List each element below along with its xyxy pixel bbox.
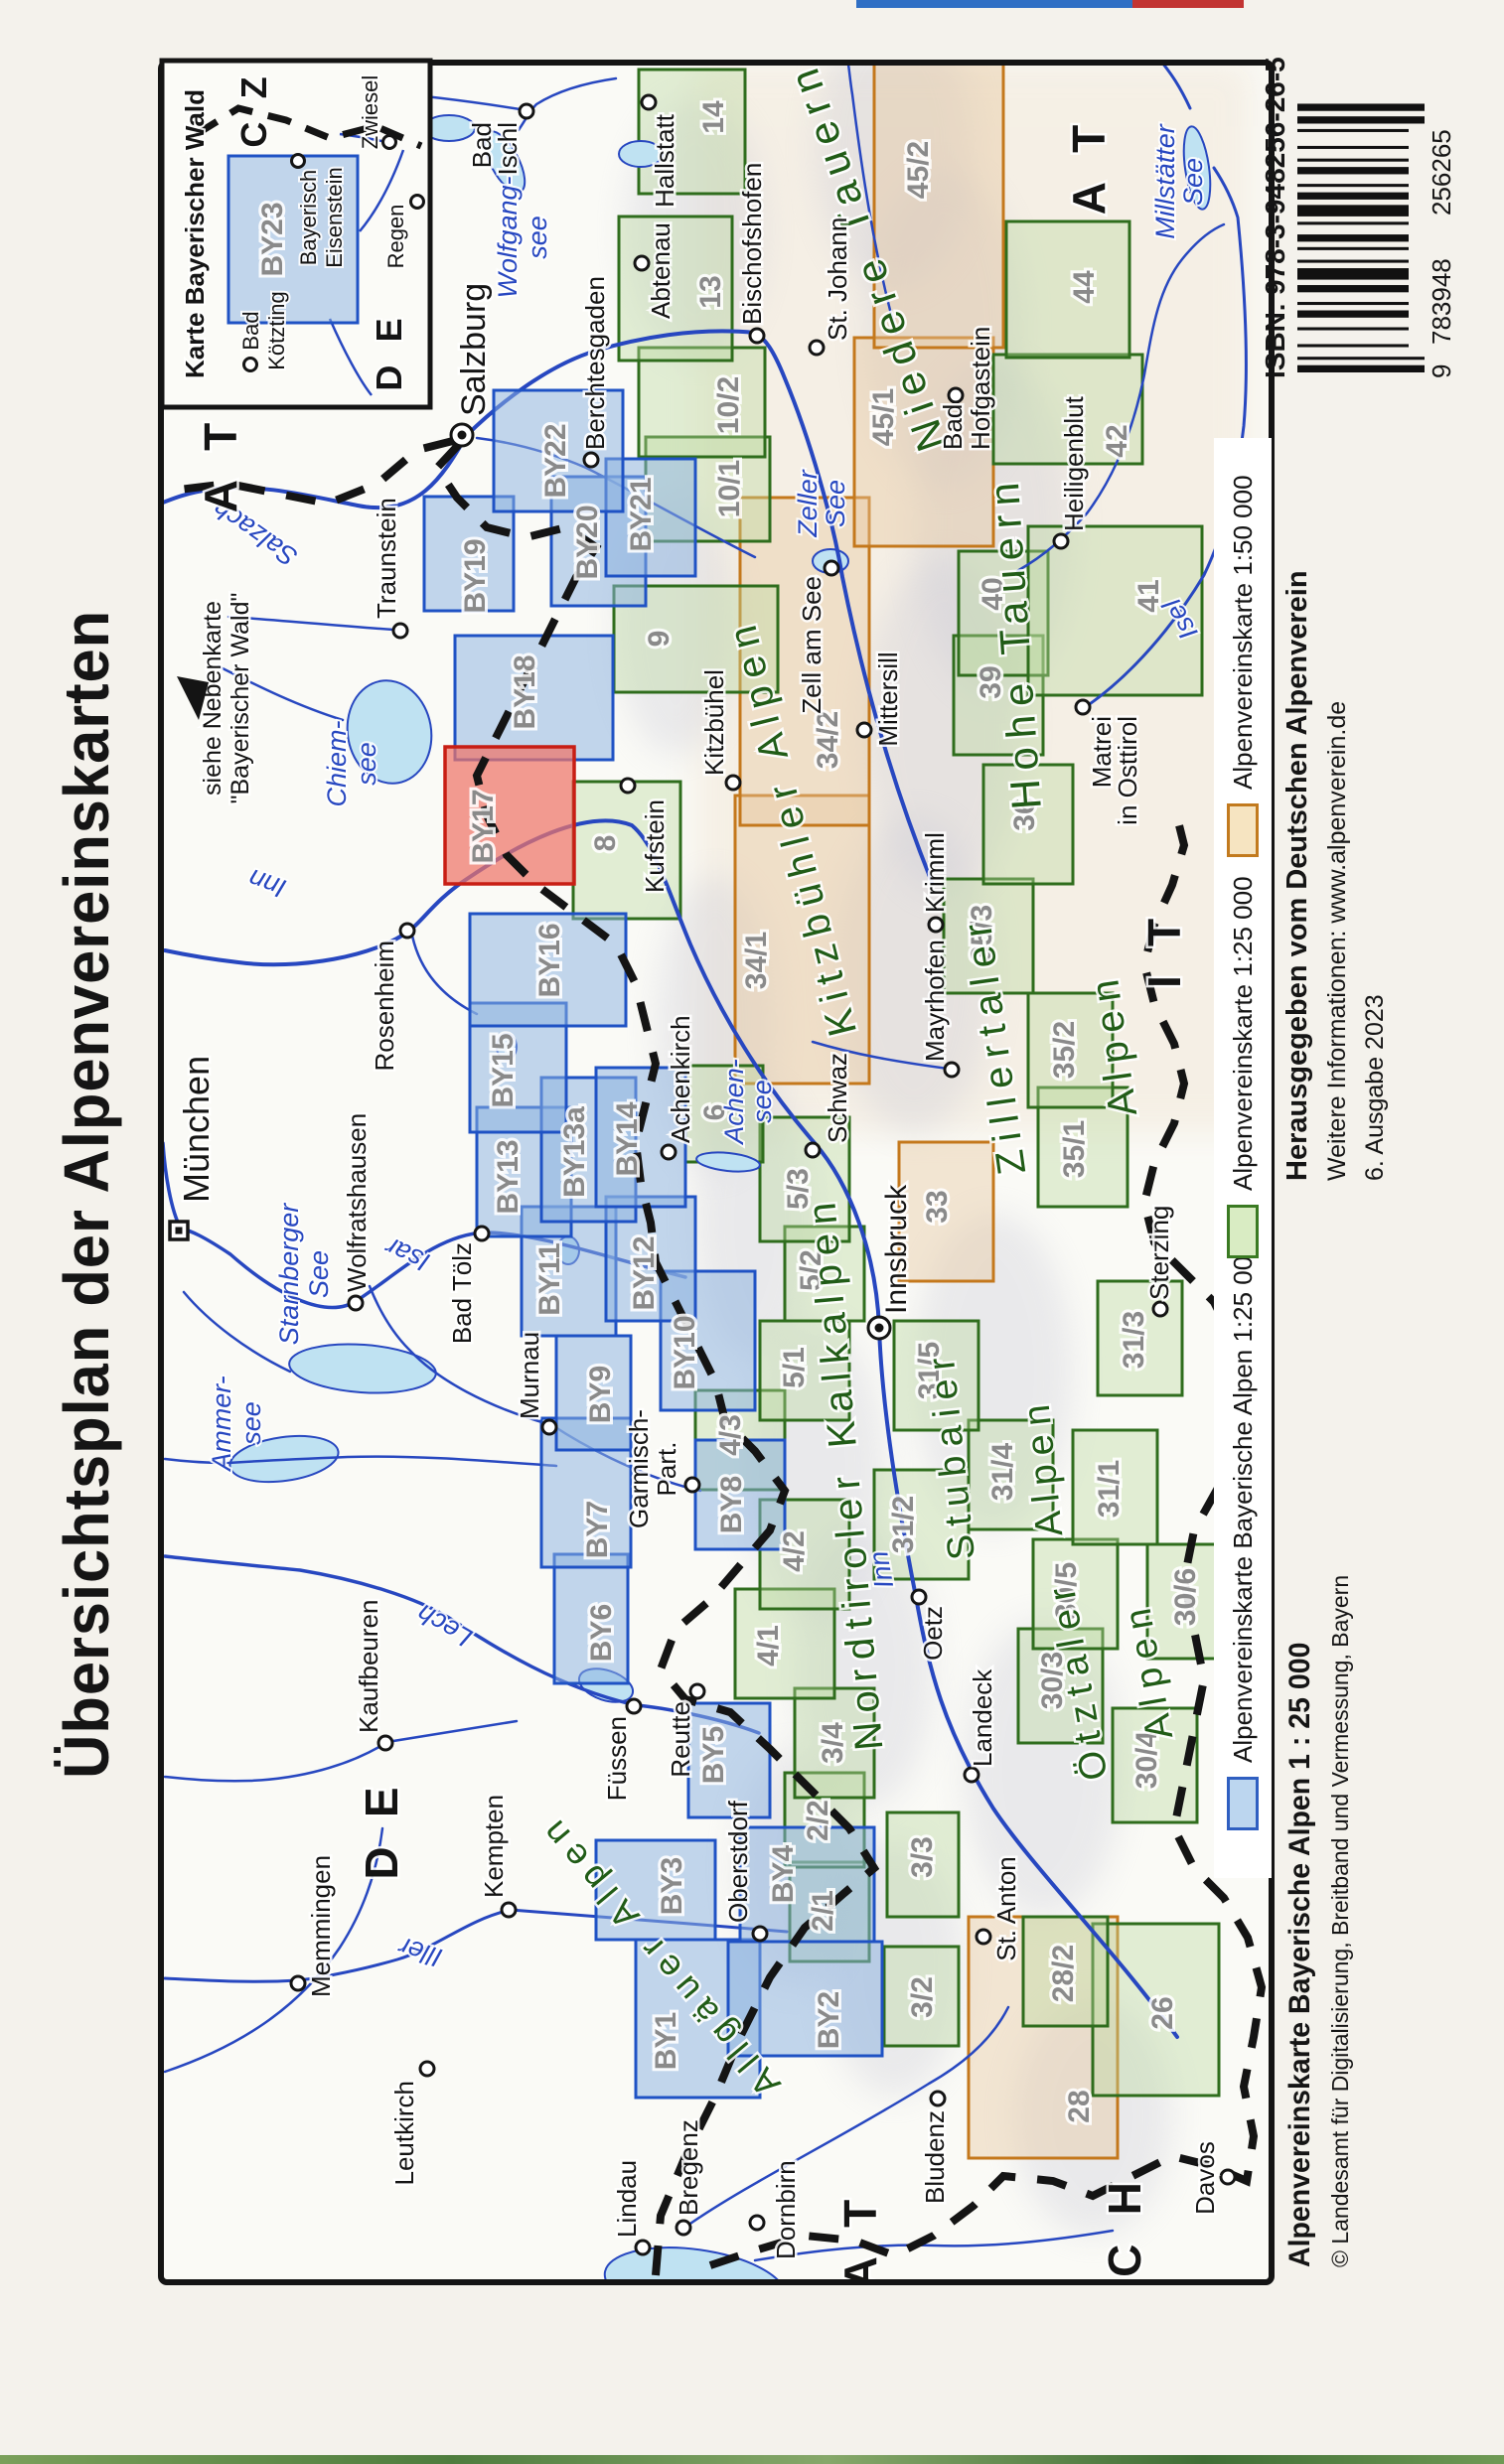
sheet-label-45/2: 45/2 — [902, 141, 935, 199]
sheet-label-BY19: BY19 — [459, 538, 492, 613]
country-label-AT: A T — [195, 413, 246, 513]
sheet-label-BY8: BY8 — [715, 1476, 748, 1533]
tspan: Lindau — [612, 2160, 642, 2238]
city-label: Kitzbühel — [699, 669, 729, 776]
tspan: Murnau — [515, 1332, 544, 1419]
tspan: Bludenz — [920, 2110, 950, 2204]
tspan: See — [1178, 158, 1208, 206]
tspan: Memmingen — [306, 1855, 336, 1997]
sheet-label-BY6: BY6 — [585, 1604, 618, 1662]
water-label: Inn — [863, 1548, 899, 1590]
city-symbol-dot — [810, 341, 824, 355]
city-label: Wolfratshausen — [342, 1113, 372, 1292]
publisher-line: Herausgegeben vom Deutschen Alpenverein — [1281, 570, 1314, 1181]
city-label: Oberstdorf — [723, 1800, 753, 1923]
tspan: Chiem- — [322, 720, 352, 806]
legend-swatch-blue — [1227, 1777, 1259, 1830]
city-label: Hallstatt — [650, 113, 679, 208]
tspan: see — [747, 1080, 777, 1123]
tspan: Abtenau — [646, 222, 676, 319]
barcode-bar — [1297, 311, 1409, 318]
sheet-label-BY20: BY20 — [571, 505, 604, 579]
city-symbol-dot — [393, 624, 407, 638]
sheet-label-BY12: BY12 — [628, 1235, 661, 1310]
tspan: Kötzting — [264, 291, 289, 370]
sheet-label-31/2: 31/2 — [887, 1496, 920, 1553]
barcode-bar — [1297, 146, 1409, 149]
city-heiligenblut: Heiligenblut — [1054, 395, 1089, 548]
sheet-label-BY10: BY10 — [669, 1315, 701, 1389]
city-symbol-dot — [642, 95, 656, 109]
city-symbol-dot — [825, 561, 838, 575]
inset-city-symbol-dot — [292, 155, 305, 168]
city-symbol-dot — [291, 1976, 305, 1990]
sheet-label-BY11: BY11 — [533, 1242, 566, 1315]
sheet-label-BY2: BY2 — [813, 1991, 845, 2049]
ean-barcode — [1297, 90, 1427, 378]
city-wolfratshausen: Wolfratshausen — [342, 1113, 372, 1310]
tspan: Kaufbeuren — [354, 1600, 383, 1733]
city-label: Traunstein — [372, 498, 401, 619]
ean-digit-group: 9 — [1427, 345, 1457, 378]
copyright-line: © Landesamt für Digitalisierung, Breitba… — [1327, 1575, 1354, 2267]
tspan: "Bayerischer Wald" — [226, 593, 254, 804]
city-symbol-dot — [502, 1903, 516, 1917]
tspan: Oetz — [918, 1606, 948, 1661]
barcode-bar — [1297, 193, 1409, 200]
city-label: Kaufbeuren — [354, 1600, 383, 1733]
sheet-label-2/2: 2/2 — [802, 1800, 834, 1841]
isbn-block: ISBN: 978-3-948256-26-5 9 783948 256265 — [1260, 57, 1457, 378]
city-symbol-dot — [475, 1227, 489, 1240]
tspan: Kufstein — [640, 799, 670, 893]
sheet-label-4/3: 4/3 — [714, 1414, 747, 1456]
city-label: Reutte — [666, 1701, 695, 1778]
city-label: St. Anton — [991, 1856, 1021, 1961]
tspan: Garmisch- — [624, 1409, 654, 1528]
sheet-label-4/2: 4/2 — [778, 1530, 811, 1572]
city-symbol-dot — [753, 1927, 767, 1941]
tspan: Leutkirch — [389, 2081, 419, 2186]
city-symbol-dot — [349, 1296, 363, 1310]
barcode-bar — [1297, 221, 1409, 224]
tspan: Zeller — [793, 469, 823, 538]
sheet-label-3/4: 3/4 — [817, 1722, 849, 1764]
tspan: Bad Tölz — [447, 1242, 477, 1344]
sheet-label-BY17: BY17 — [467, 789, 500, 863]
city-label: Mittersill — [873, 652, 903, 746]
sheet-label-BY15: BY15 — [487, 1033, 520, 1107]
barcode-bar — [1297, 285, 1409, 292]
tspan: Mayrhofen — [920, 940, 950, 1062]
city-symbol-dot — [662, 1145, 676, 1159]
country-label-DE: D E — [356, 1777, 407, 1879]
sheet-label-31/1: 31/1 — [1093, 1460, 1126, 1518]
legend-label: Alpenvereinskarte Bayerische Alpen 1:25 … — [1228, 1241, 1259, 1763]
sheet-label-BY13: BY13 — [492, 1139, 525, 1214]
sheet-label-14: 14 — [697, 100, 730, 134]
fold-edge-red — [1132, 0, 1244, 8]
city-label: Abtenau — [646, 222, 676, 319]
city-label: Bludenz — [920, 2110, 950, 2204]
inset-reference-note: siehe Nebenkarte"Bayerischer Wald" — [199, 593, 254, 804]
fold-edge-green — [0, 2455, 1504, 2464]
legend-swatch-green — [1227, 1205, 1259, 1258]
city-label: Rosenheim — [370, 941, 399, 1072]
sheet-label-5/1: 5/1 — [778, 1347, 811, 1388]
tspan: Zell am See — [797, 576, 827, 714]
tspan: in Osttirol — [1113, 716, 1142, 825]
tspan: See — [821, 480, 850, 527]
city-symbol-dot — [685, 1478, 699, 1492]
tspan: Schwaz — [823, 1053, 852, 1143]
city-label: Sterzing — [1144, 1206, 1174, 1300]
sheet-label-13: 13 — [694, 275, 727, 308]
city-label: Bregenz — [674, 2119, 703, 2216]
sheet-label-BY5: BY5 — [697, 1726, 730, 1784]
sheet-label-BY13a: BY13a — [558, 1106, 591, 1198]
tspan: Eisenstein — [322, 167, 347, 268]
legend-item-bayerische-alpen: Alpenvereinskarte Bayerische Alpen 1:25 … — [1224, 1241, 1262, 1830]
ean-digits: 9 783948 256265 — [1427, 57, 1457, 378]
city-symbol-dot — [965, 1768, 978, 1782]
barcode-bar — [1297, 344, 1409, 347]
city-label: Innsbruck — [880, 1184, 913, 1314]
sheet-label-BY3: BY3 — [656, 1857, 688, 1915]
sheet-label-2/1: 2/1 — [807, 1890, 839, 1932]
city-symbol-dot — [750, 2216, 764, 2230]
sheet-label-BY23: BY23 — [256, 202, 289, 276]
city-label: Kufstein — [640, 799, 670, 893]
tspan: Heiligenblut — [1059, 395, 1089, 531]
tspan: Kitzbühel — [699, 669, 729, 776]
tspan: München — [176, 1056, 217, 1203]
city-label: Zell am See — [797, 576, 827, 714]
city-symbol-dot — [542, 1420, 556, 1434]
barcode-bar — [1297, 260, 1409, 263]
city-label: Murnau — [515, 1332, 544, 1419]
map-legend: Alpenvereinskarte Bayerische Alpen 1:25 … — [1214, 438, 1272, 1878]
tspan: Ammer- — [207, 1376, 236, 1473]
city-symbol-dot — [378, 1736, 392, 1750]
sheet-label-BY9: BY9 — [584, 1366, 617, 1423]
city-label: Lindau — [612, 2160, 642, 2238]
inset-city-symbol-dot — [383, 136, 396, 149]
city-symbol-dot — [949, 388, 963, 402]
sheet-label-BY18: BY18 — [509, 654, 541, 729]
inset-city-symbol-dot — [244, 359, 257, 371]
barcode-bar — [1297, 357, 1425, 360]
tspan: Part. — [652, 1442, 681, 1497]
city-symbol-dot — [977, 1930, 990, 1944]
legend-label: Alpenvereinskarte 1:25 000 — [1228, 876, 1259, 1191]
inset-heading: Karte Bayerischer Wald — [180, 89, 210, 378]
tspan: Kempten — [479, 1795, 509, 1898]
country-label-CH: C H — [1099, 2172, 1150, 2277]
tspan: Krimml — [920, 832, 950, 913]
barcode-bar — [1297, 159, 1409, 162]
city-label: Berchtesgaden — [580, 276, 610, 450]
tspan: Achen- — [719, 1059, 749, 1146]
fold-edge-blue — [856, 0, 1132, 8]
tspan: Landeck — [968, 1668, 997, 1767]
legend-item-avk-50000: Alpenvereinskarte 1:50 000 — [1224, 475, 1262, 857]
city-achenkirch: Achenkirch — [662, 1015, 695, 1159]
city-landeck: Landeck — [965, 1668, 997, 1782]
tspan: Sterzing — [1144, 1206, 1174, 1300]
tspan: Füssen — [602, 1716, 632, 1801]
tspan: Hallstatt — [650, 113, 679, 208]
city-label: Leutkirch — [389, 2081, 419, 2186]
city-symbol-dot — [677, 2221, 690, 2235]
barcode-bar — [1297, 365, 1425, 372]
city-symbol-dot — [627, 1699, 641, 1713]
sheet-label-BY16: BY16 — [533, 923, 566, 997]
tspan: Rosenheim — [370, 941, 399, 1072]
city-label: Salzburg — [455, 283, 493, 416]
info-line: Weitere Informationen: www.alpenverein.d… — [1323, 570, 1352, 1181]
tspan: Oberstdorf — [723, 1800, 753, 1923]
city-sterzing: Sterzing — [1144, 1206, 1174, 1316]
country-label-IT: I T — [1138, 909, 1190, 988]
tspan: Hofgastein — [966, 327, 995, 450]
inset-bayerischer-wald: BY23Karte Bayerischer WaldC ZD EBayerisc… — [162, 61, 430, 407]
city-label: München — [176, 1056, 217, 1203]
sheet-label-30/6: 30/6 — [1169, 1568, 1202, 1626]
tspan: Mittersill — [873, 652, 903, 746]
tspan: Wolfratshausen — [342, 1113, 372, 1292]
barcode-bar — [1297, 167, 1409, 174]
city-label: Davos — [1190, 2141, 1220, 2215]
legend-label: Alpenvereinskarte 1:50 000 — [1228, 475, 1259, 790]
city-symbol-dot — [726, 776, 740, 790]
city-symbol-dot — [1221, 2170, 1235, 2184]
barcode-bar — [1297, 302, 1409, 305]
tspan: see — [352, 742, 381, 786]
city-symbol-dot — [690, 1684, 704, 1698]
sheet-label-BY14: BY14 — [611, 1101, 644, 1176]
sheet-label-44: 44 — [1068, 270, 1101, 304]
country-label-AT: A T — [1063, 115, 1115, 216]
sheet-label-28/2: 28/2 — [1047, 1945, 1080, 2002]
city-symbol-dot — [1153, 1302, 1167, 1316]
sheet-label-33: 33 — [921, 1190, 954, 1223]
tspan: St. Anton — [991, 1856, 1021, 1961]
sheet-label-34/2: 34/2 — [812, 711, 844, 769]
tspan: Bischofshofen — [737, 163, 767, 325]
barcode-bar — [1297, 103, 1425, 110]
barcode-bar — [1297, 205, 1409, 217]
city-label: Mayrhofen — [920, 940, 950, 1062]
city-label: Krimml — [920, 832, 950, 913]
city-label: Achenkirch — [666, 1015, 695, 1143]
tspan: Dornbirn — [771, 2160, 801, 2259]
city-label: Dornbirn — [771, 2160, 801, 2259]
inset-country-label-CZ: C Z — [233, 69, 274, 147]
series-title-block: Alpenvereinskarte Bayerische Alpen 1 : 2… — [1283, 1575, 1354, 2267]
tspan: Zwiesel — [358, 75, 382, 150]
city-label: Memmingen — [306, 1855, 336, 1997]
inset-country-label-DE: D E — [369, 310, 409, 390]
barcode-bar — [1297, 247, 1409, 250]
inset-city-symbol-dot — [411, 196, 424, 209]
barcode-bar — [1297, 116, 1425, 123]
tspan: Salzburg — [455, 283, 493, 416]
series-title: Alpenvereinskarte Bayerische Alpen 1 : 2… — [1283, 1610, 1317, 2267]
tspan: Regen — [383, 205, 408, 269]
barcode-bar — [1297, 234, 1409, 241]
publisher-block: Herausgegeben vom Deutschen Alpenverein … — [1281, 570, 1390, 1181]
city-label: Bad Tölz — [447, 1242, 477, 1344]
ean-digit-group: 256265 — [1427, 129, 1457, 216]
barcode-bar — [1297, 268, 1409, 280]
sheet-label-26: 26 — [1146, 1996, 1179, 2029]
tspan: Bregenz — [674, 2119, 703, 2216]
sheet-label-BY4: BY4 — [767, 1845, 800, 1904]
tspan: Reutte — [666, 1701, 695, 1778]
sheet-label-28: 28 — [1063, 2090, 1096, 2122]
city-symbol-dot — [584, 453, 598, 467]
sheet-label-35/2: 35/2 — [1048, 1021, 1081, 1079]
city-symbol-dot — [945, 1063, 959, 1077]
tspan: see — [523, 216, 552, 259]
city-symbol-ring-dot — [875, 1324, 884, 1333]
tspan: Achenkirch — [666, 1015, 695, 1143]
sheet-label-BY22: BY22 — [539, 423, 572, 498]
sheet-label-4/1: 4/1 — [752, 1625, 785, 1667]
edition-line: 6. Ausgabe 2023 — [1361, 570, 1390, 1181]
city-symbol-dot — [1076, 700, 1090, 714]
tspan: See — [304, 1250, 334, 1298]
city-symbol-dot — [420, 2062, 434, 2076]
sheet-label-34/1: 34/1 — [740, 932, 773, 989]
barcode-bar — [1297, 327, 1409, 330]
sheet-label-31/3: 31/3 — [1118, 1311, 1150, 1369]
city-symbol-dot — [857, 723, 871, 737]
city-label: Füssen — [602, 1716, 632, 1801]
barcode-bar — [1297, 129, 1409, 132]
tspan: Bad — [238, 311, 263, 350]
city-symbol-dot — [1054, 534, 1068, 548]
ean-digit-group: 783948 — [1427, 216, 1457, 345]
tspan: Innsbruck — [880, 1184, 913, 1314]
tspan: Millstätter — [1150, 123, 1180, 239]
city-symbol-dot — [929, 918, 943, 932]
sheet-10/2 — [639, 348, 765, 457]
sheet-label-35/1: 35/1 — [1058, 1120, 1091, 1178]
city-berchtesgaden: Berchtesgaden — [580, 276, 610, 467]
sheet-label-BY7: BY7 — [581, 1501, 614, 1558]
city-label: Oetz — [918, 1606, 948, 1661]
tspan: Wolfgang- — [493, 176, 523, 298]
city-symbol-ring-dot — [458, 431, 467, 440]
tspan: St. Johann — [823, 217, 852, 341]
sheet-label-10/1: 10/1 — [713, 460, 746, 517]
tspan: Bad — [938, 404, 968, 450]
inset-city-label: Zwiesel — [358, 75, 382, 150]
city-symbol-square-dot — [176, 1228, 183, 1234]
sheet-label-31/4: 31/4 — [986, 1442, 1019, 1501]
sheet-label-BY21: BY21 — [625, 477, 658, 551]
scanned-map-back-page: Übersichtsplan der Alpenvereinskarten 28… — [0, 0, 1504, 2464]
city-bischofshofen: Bischofshofen — [737, 163, 767, 343]
barcode-bar — [1297, 184, 1409, 187]
city-symbol-dot — [400, 924, 414, 938]
legend-item-avk-25000: Alpenvereinskarte 1:25 000 — [1224, 876, 1262, 1258]
tspan: Berchtesgaden — [580, 276, 610, 450]
sheet-label-10/2: 10/2 — [712, 376, 745, 434]
city-label: BadIschl — [467, 122, 523, 175]
landscape-layout: Übersichtsplan der Alpenvereinskarten 28… — [0, 0, 1504, 2464]
sheet-label-9: 9 — [643, 631, 676, 648]
city-label: Schwaz — [823, 1053, 852, 1143]
sheet-label-42: 42 — [1101, 424, 1133, 457]
legend-swatch-orange — [1227, 803, 1259, 857]
sheet-label-3/2: 3/2 — [906, 1976, 939, 2018]
city-label: Landeck — [968, 1668, 997, 1767]
city-symbol-dot — [621, 779, 635, 793]
city-symbol-dot — [636, 2241, 650, 2254]
tspan: see — [236, 1401, 266, 1445]
tspan: Starnberger — [274, 1203, 304, 1346]
tspan: Bayerisch — [296, 170, 321, 266]
city-symbol-dot — [520, 104, 533, 118]
tspan: Traunstein — [372, 498, 401, 619]
city-label: Kempten — [479, 1795, 509, 1898]
tspan: Ischl — [493, 122, 523, 175]
city-symbol-dot — [912, 1590, 926, 1604]
tspan: Davos — [1190, 2141, 1220, 2215]
city-label: Bischofshofen — [737, 163, 767, 325]
isbn-text: ISBN: 978-3-948256-26-5 — [1260, 57, 1291, 378]
city-label: Heiligenblut — [1059, 395, 1089, 531]
sheet-label-BY1: BY1 — [650, 2012, 682, 2070]
city-symbol-dot — [931, 2092, 945, 2105]
sheet-label-8: 8 — [589, 835, 622, 852]
city-symbol-dot — [806, 1143, 820, 1157]
sheet-label-3/3: 3/3 — [906, 1836, 939, 1878]
country-label-AT: A T — [834, 2190, 886, 2290]
inset-city-label: Regen — [383, 205, 408, 269]
city-label: St. Johann — [823, 217, 852, 341]
city-symbol-dot — [750, 329, 764, 343]
tspan: Inn — [863, 1548, 899, 1590]
inset-city-label: BayerischEisenstein — [296, 167, 347, 268]
